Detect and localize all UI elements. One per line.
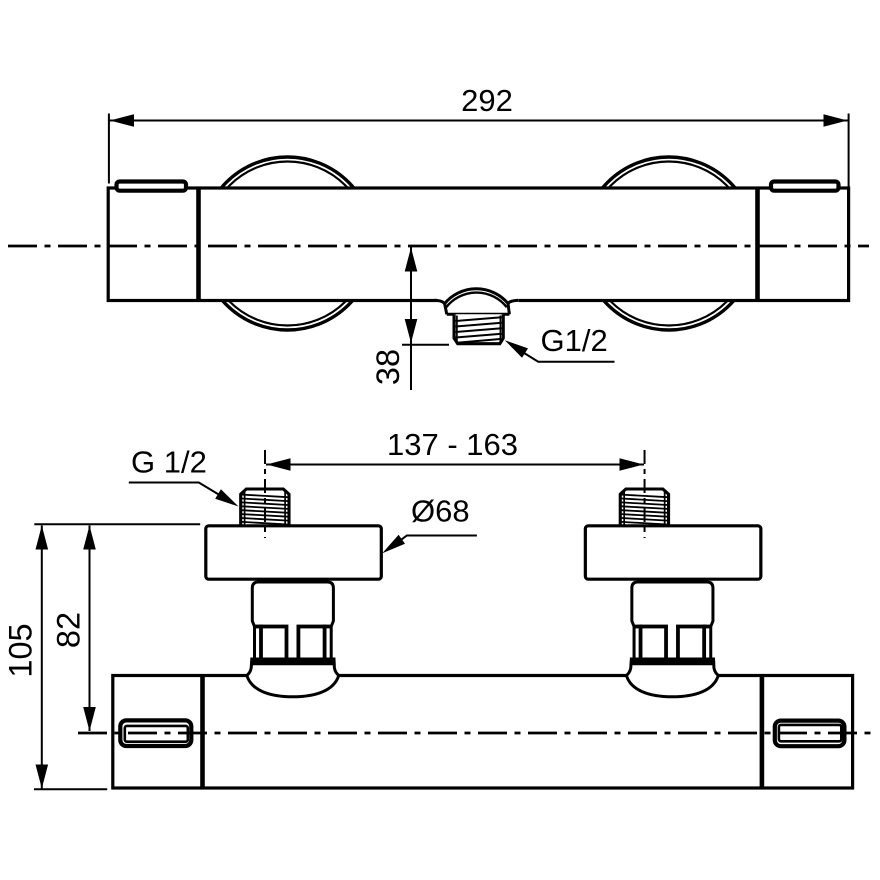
svg-text:G 1/2: G 1/2 [131, 445, 207, 480]
svg-text:38: 38 [370, 349, 406, 385]
svg-text:G1/2: G1/2 [541, 323, 608, 358]
svg-text:137 - 163: 137 - 163 [387, 427, 518, 462]
svg-text:82: 82 [51, 612, 87, 648]
svg-text:292: 292 [461, 83, 513, 118]
svg-text:105: 105 [3, 623, 39, 677]
svg-text:Ø68: Ø68 [411, 494, 470, 529]
